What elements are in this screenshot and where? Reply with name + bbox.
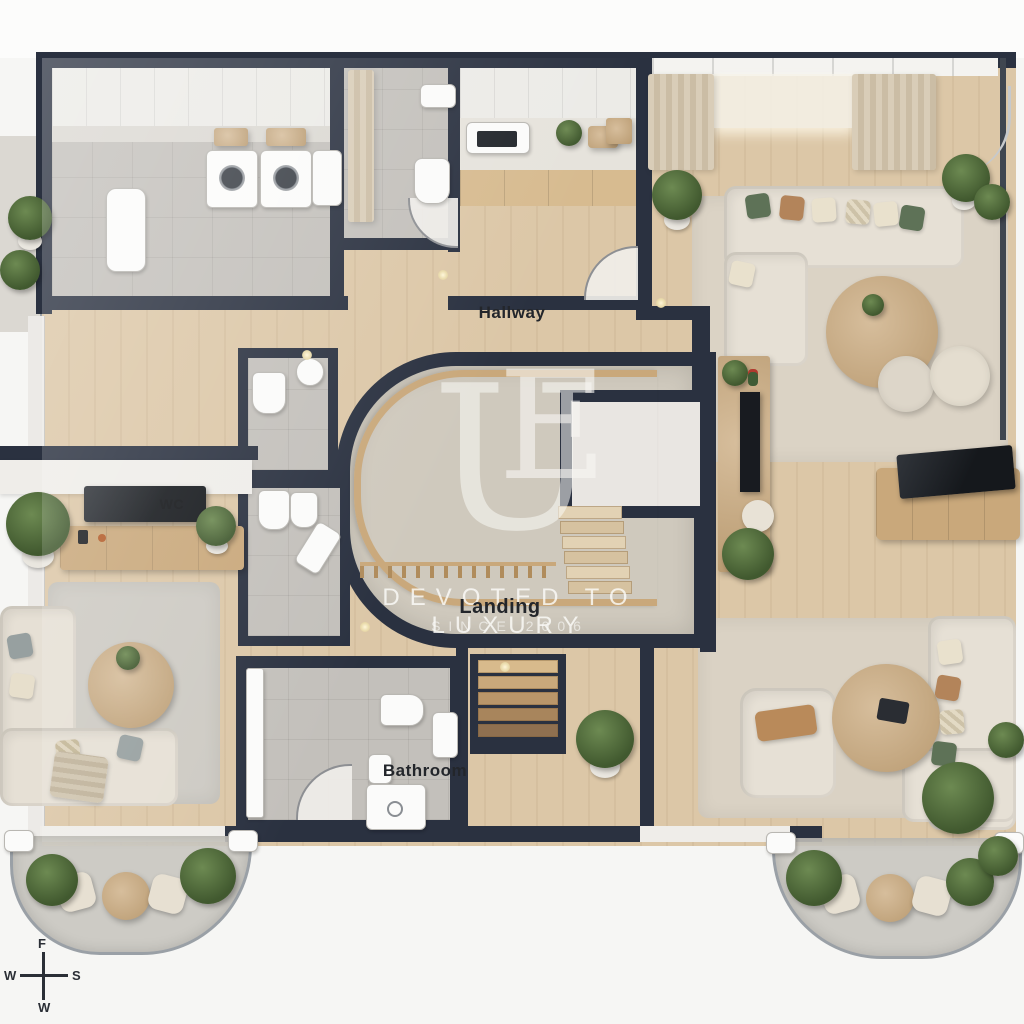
landing-label: Landing — [430, 596, 570, 619]
shower-curtain — [348, 70, 374, 222]
cushion-gray — [6, 632, 34, 660]
stair-step — [566, 566, 630, 579]
compass-right-letter: S — [72, 968, 81, 983]
balcony-plant — [0, 250, 40, 290]
storage-box — [606, 118, 632, 144]
table-plant — [862, 294, 884, 316]
armchair — [740, 688, 836, 798]
curtain-right — [852, 74, 936, 170]
compass-top-letter: F — [38, 936, 46, 951]
wall-hall-living-h — [636, 306, 706, 320]
shower-tray — [366, 784, 426, 830]
curtain-left — [648, 74, 714, 170]
cushion-gray — [116, 734, 144, 762]
balcony-plant — [8, 196, 52, 240]
shower-shelf — [420, 84, 456, 108]
tall-black-shelf — [740, 392, 760, 492]
washer-door — [219, 165, 245, 191]
stair-step — [478, 708, 558, 721]
desk-plant — [722, 360, 748, 386]
cushion-green — [744, 192, 771, 219]
cushion-cream — [811, 197, 837, 223]
balcony-pillar — [228, 830, 258, 852]
balcony-plant — [786, 850, 842, 906]
balcony-plant — [26, 854, 78, 906]
ceiling-spotlight — [656, 298, 666, 308]
hallway-label: Hallway — [452, 303, 572, 323]
toilet — [414, 158, 450, 204]
top-white-band — [0, 0, 1024, 58]
stair-step — [560, 521, 624, 534]
coffee-machine — [466, 122, 530, 154]
balcony-plant — [978, 836, 1018, 876]
storage-box — [266, 128, 306, 146]
console-plant — [196, 506, 236, 546]
stair-step — [478, 724, 558, 737]
cactus-decor — [748, 372, 758, 386]
wash-basin — [296, 358, 324, 386]
laundry-cabinets — [52, 68, 344, 128]
table-plant — [116, 646, 140, 670]
floor-plant — [988, 722, 1024, 758]
ceiling-spotlight — [438, 270, 448, 280]
console-lamp — [78, 530, 88, 544]
stair-step — [478, 660, 558, 673]
dryer-door — [273, 165, 299, 191]
kitchen-plant — [556, 120, 582, 146]
floor-plant — [922, 762, 994, 834]
bathroom-vanity — [246, 668, 264, 818]
compass-left-letter: W — [4, 968, 16, 983]
throw-blanket — [49, 750, 109, 803]
sheer-curtain — [712, 74, 854, 128]
ceiling-spotlight — [360, 622, 370, 632]
cushion-green — [898, 204, 925, 231]
toilet — [258, 490, 290, 530]
shower-drain — [387, 801, 403, 817]
living-plant — [974, 184, 1010, 220]
cushion-tan — [779, 195, 805, 221]
pouf — [878, 356, 934, 412]
wall-stairroom-right — [640, 636, 654, 840]
storage-box — [214, 128, 248, 146]
balcony-table — [102, 872, 150, 920]
tv-screen-left: WC — [84, 486, 206, 522]
dryer-machine — [260, 150, 312, 208]
stair-railing — [360, 562, 556, 578]
console-decor — [98, 534, 106, 542]
stair-step — [568, 581, 632, 594]
toilet — [252, 372, 286, 414]
balcony-table — [866, 874, 914, 922]
coffee-machine-body — [477, 131, 517, 147]
floor-plant — [576, 710, 634, 768]
wall-laundry-bottom — [36, 296, 348, 310]
cushion-pattern — [939, 709, 965, 735]
floor-plant — [722, 528, 774, 580]
floor-plan-render: { "room_labels": { "hallway": "Hallway",… — [0, 0, 1024, 1024]
washing-machine — [206, 150, 258, 208]
stair-step — [562, 536, 626, 549]
balcony-plant — [180, 848, 236, 904]
kitchen-upper-cabinets — [460, 66, 636, 120]
bidet — [290, 492, 318, 528]
floor-plant — [6, 492, 70, 556]
kitchen-lower-cabinets — [460, 170, 636, 206]
utility-appliance — [312, 150, 342, 206]
living-plant — [652, 170, 702, 220]
cushion-cream — [728, 260, 756, 288]
stair-step — [478, 676, 558, 689]
wc-label: WC — [160, 496, 184, 512]
stair-step — [558, 506, 622, 519]
stair-step — [564, 551, 628, 564]
bench-seat — [106, 188, 146, 272]
cushion-pattern — [845, 199, 871, 225]
cushion-cream — [8, 672, 35, 699]
toilet — [380, 694, 424, 726]
compass-bottom-letter: W — [38, 1000, 50, 1015]
cushion-cream — [936, 638, 963, 665]
wall-lamp — [302, 350, 312, 360]
ceiling-spotlight — [500, 662, 510, 672]
cushion-cream — [873, 201, 899, 227]
pouf — [930, 346, 990, 406]
balcony-pillar — [766, 832, 796, 854]
wall-tvroom-top — [0, 446, 258, 460]
stair-step — [478, 692, 558, 705]
balcony-pillar — [4, 830, 34, 852]
cushion-tan — [934, 674, 962, 702]
bathroom-label: Bathroom — [362, 761, 488, 781]
wash-basin — [432, 712, 458, 758]
